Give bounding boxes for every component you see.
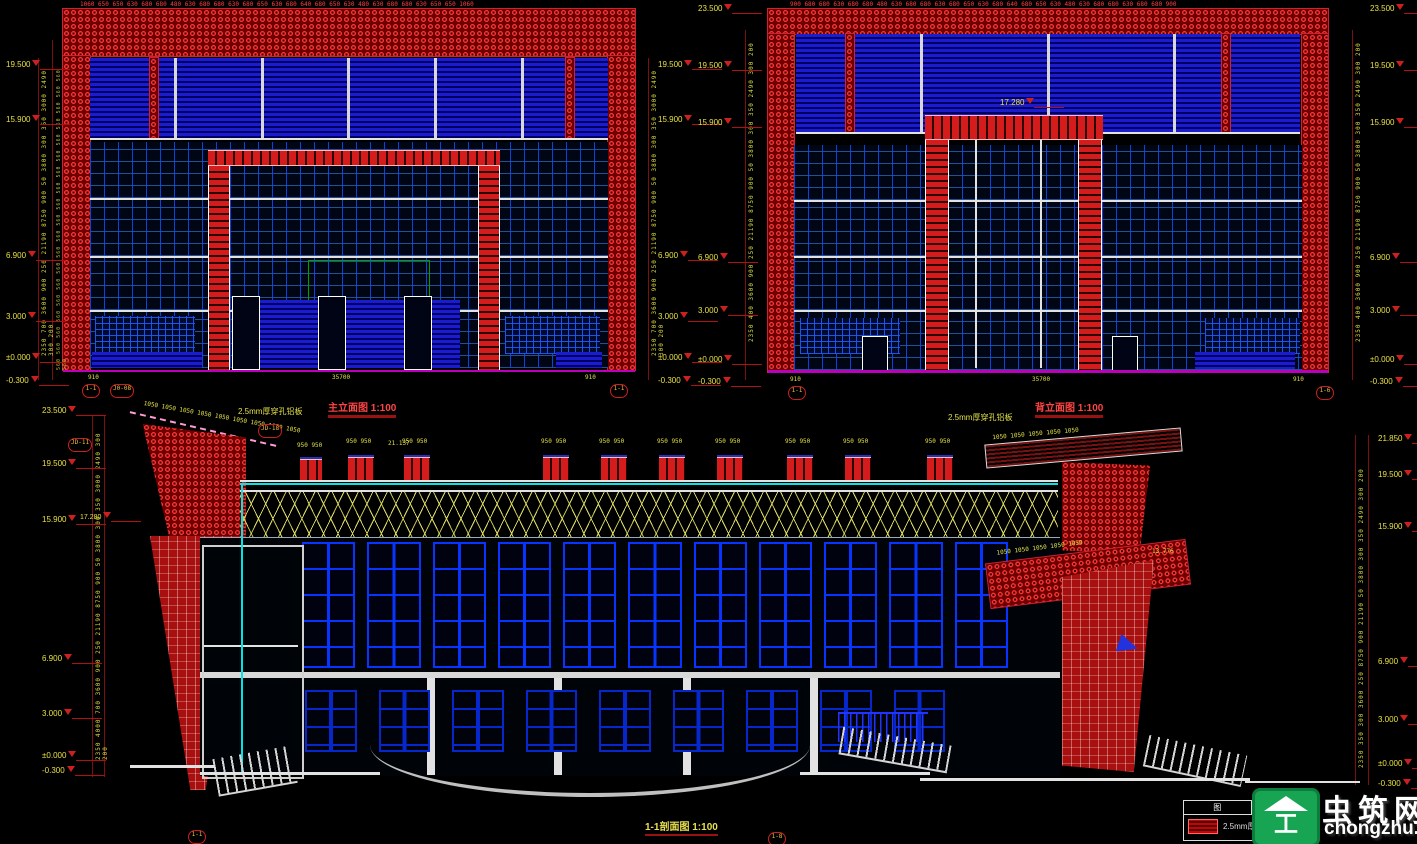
ground-line: [800, 772, 930, 775]
level-marker: 15.900: [6, 115, 40, 125]
red-brick-pier: [1078, 140, 1102, 370]
perforated-panel-band-top: [63, 9, 635, 56]
roof-monitor: 950 950: [300, 451, 322, 481]
title-scale: 1:100: [371, 403, 397, 414]
side-dimension-chain: 2350 400 3600 900 250 21190 8750 900 50 …: [748, 42, 755, 342]
section-window: [746, 690, 798, 752]
level-triangle-icon: [32, 353, 40, 363]
axis-bubble: 1-1: [82, 384, 100, 398]
watermark-logo: 工: [1252, 788, 1320, 844]
level-triangle-icon: [68, 406, 76, 416]
level-marker: 19.500: [1378, 470, 1412, 480]
level-marker: ±0.000: [698, 355, 732, 365]
perforated-strip: [1222, 34, 1230, 132]
perforated-wedge-upper: [136, 424, 246, 536]
section-window: [367, 542, 420, 668]
level-triangle-icon: [32, 60, 40, 70]
louver-panel: [95, 316, 195, 354]
level-marker: -0.300: [6, 376, 39, 386]
level-triangle-icon: [723, 377, 731, 387]
level-marker: 6.900: [6, 251, 36, 261]
level-marker: 17.280: [80, 512, 111, 522]
slope-elevation-mark: 13.776: [1152, 548, 1174, 555]
section-window: [305, 690, 357, 752]
level-triangle-icon: [720, 253, 728, 263]
section-window: [563, 542, 616, 668]
level-marker: 19.500: [6, 60, 40, 70]
level-marker: 15.900: [698, 118, 732, 128]
level-triangle-icon: [680, 251, 688, 261]
level-triangle-icon: [68, 515, 76, 525]
level-triangle-icon: [67, 766, 75, 776]
roller-shutter-panel: [437, 58, 521, 138]
level-triangle-icon: [1395, 377, 1403, 387]
red-brick-pier: [925, 140, 949, 370]
level-triangle-icon: [1392, 306, 1400, 316]
door-frame: [1112, 336, 1138, 372]
section-window: [673, 690, 725, 752]
ground-base-line: [768, 370, 1328, 373]
level-marker: 6.900: [1370, 253, 1400, 263]
level-triangle-icon: [684, 115, 692, 125]
level-triangle-icon: [1396, 118, 1404, 128]
dimension-line: [1355, 435, 1356, 785]
bottom-dimension: 35700: [1032, 376, 1050, 383]
glazing-band: [556, 352, 602, 368]
level-marker: 3.000: [698, 306, 728, 316]
bottom-dimension: 910: [790, 376, 801, 383]
perforated-panel-note: 2.5mm厚穿孔铝板: [948, 412, 1012, 423]
front-elevation-title: 主立面图 1:100: [328, 399, 396, 418]
roller-shutter-panel: [796, 34, 920, 132]
louver-panel: [505, 316, 600, 354]
glazing-band: [92, 352, 202, 368]
level-triangle-icon: [1396, 355, 1404, 365]
level-marker: 6.900: [1378, 657, 1408, 667]
level-marker: 19.500: [698, 61, 732, 71]
axis-bubble: 1-1: [188, 830, 206, 844]
level-triangle-icon: [684, 353, 692, 363]
section-window: [694, 542, 747, 668]
level-triangle-icon: [1404, 522, 1412, 532]
level-triangle-icon: [64, 654, 72, 664]
dimension-line: [648, 58, 649, 380]
level-marker: 23.500: [42, 406, 76, 416]
upper-window-row: [302, 542, 1008, 668]
title-scale: 1:100: [1078, 403, 1104, 414]
level-marker: 23.500: [1370, 4, 1404, 14]
door-frame: [862, 336, 888, 372]
foundation-curve: [370, 745, 810, 797]
dimension-line: [1368, 435, 1369, 785]
level-triangle-icon: [1404, 759, 1412, 769]
window-grid-floor: [794, 202, 1302, 256]
level-triangle-icon: [31, 376, 39, 386]
level-marker: -0.300: [1370, 377, 1403, 387]
axis-bubble: 1-6: [1316, 386, 1334, 400]
level-marker: 3.000: [1378, 715, 1408, 725]
legend-header-cell: 图: [1184, 801, 1252, 814]
window-grid-floor: [794, 145, 1302, 200]
level-marker: 15.900: [1378, 522, 1412, 532]
level-marker: 6.900: [658, 251, 688, 261]
dimension-line: [38, 58, 39, 380]
door-frame: [404, 296, 432, 370]
cad-canvas: 1060 650 650 630 680 680 480 630 680 680…: [0, 0, 1417, 844]
axis-bubble: 1-1: [610, 384, 628, 398]
ground-line: [200, 772, 380, 775]
detail-bubble: JD-18: [258, 424, 282, 438]
level-triangle-icon: [64, 709, 72, 719]
level-marker: 15.900: [1370, 118, 1404, 128]
roof-monitor: 950 950: [787, 447, 813, 481]
perforated-panel-column-right: [1302, 34, 1328, 372]
level-triangle-icon: [1400, 715, 1408, 725]
bottom-dimension: 35700: [332, 374, 350, 381]
section-window: [824, 542, 877, 668]
level-triangle-icon: [103, 512, 111, 522]
roller-shutter-panel: [90, 58, 174, 138]
roof-monitor: 950 950: [601, 447, 627, 481]
level-marker: 3.000: [1370, 306, 1400, 316]
level-triangle-icon: [1396, 61, 1404, 71]
level-marker: -0.300: [698, 377, 731, 387]
level-triangle-icon: [680, 312, 688, 322]
title-text: 主立面图: [328, 403, 368, 414]
section-window: [433, 542, 486, 668]
section-window: [379, 690, 431, 752]
section-window: [452, 690, 504, 752]
dimension-line: [745, 30, 746, 380]
level-marker: 19.500: [1370, 61, 1404, 71]
level-triangle-icon: [724, 355, 732, 365]
right-perforated-wall: [1062, 560, 1154, 772]
level-marker: ±0.000: [658, 353, 692, 363]
mullion-line: [975, 140, 977, 368]
glazing-band: [1195, 352, 1295, 369]
level-triangle-icon: [28, 251, 36, 261]
title-scale: 1:100: [692, 822, 718, 833]
side-dimension-chain: 2350 4000 700 3600 900 250 21190 8750 90…: [95, 430, 109, 760]
red-brick-pier: [208, 166, 230, 370]
roof-monitor: 950 950: [659, 447, 685, 481]
window-grid-floor: [794, 258, 1302, 310]
section-window: [526, 690, 578, 752]
level-triangle-icon: [724, 4, 732, 14]
ground-base-line: [63, 370, 635, 372]
title-text: 背立面图: [1035, 403, 1075, 414]
roof-line: [240, 480, 1058, 482]
roller-shutter-panel: [1176, 34, 1300, 132]
title-text: 1-1剖面图: [645, 822, 689, 833]
detail-bubble: J0-08: [110, 384, 134, 398]
level-marker: 19.500: [658, 60, 692, 70]
level-triangle-icon: [724, 61, 732, 71]
bottom-dimension: 910: [88, 374, 99, 381]
house-body-icon: 工: [1255, 811, 1317, 837]
section-window: [599, 690, 651, 752]
perforated-strip: [846, 34, 854, 132]
ground-line: [1245, 781, 1360, 783]
watermark-site-url: chongzhu.cn: [1324, 818, 1417, 840]
ground-line: [130, 765, 215, 768]
level-triangle-icon: [1392, 253, 1400, 263]
level-marker: 17.280: [1000, 98, 1034, 108]
level-marker: 6.900: [698, 253, 728, 263]
level-marker: -0.300: [658, 376, 691, 386]
level-marker: 3.000: [658, 312, 688, 322]
level-triangle-icon: [1404, 470, 1412, 480]
interior-room-outline: [202, 545, 304, 779]
dimension-line: [92, 415, 93, 777]
perforated-panel-hatch-swatch: [1188, 819, 1218, 834]
side-small-dimension-chain: 560 560 560 560 560 560 560 560 560 560 …: [56, 60, 68, 370]
interior-floor-line: [204, 645, 298, 647]
section-window: [889, 542, 942, 668]
level-marker: 15.900: [42, 515, 76, 525]
level-triangle-icon: [724, 118, 732, 128]
section-window: [628, 542, 681, 668]
perforated-panel-column-left: [768, 34, 794, 372]
dimension-line: [1352, 30, 1353, 380]
floor-line: [90, 138, 608, 140]
axis-bubble: 1-8: [768, 832, 786, 844]
level-marker: ±0.000: [1378, 759, 1412, 769]
louver-panel: [1205, 318, 1300, 354]
section-title: 1-1剖面图 1:100: [645, 818, 718, 836]
level-marker: -0.300: [42, 766, 75, 776]
floor-slab: [200, 672, 1060, 678]
perforated-strip: [150, 58, 158, 138]
side-dimension-chain: 2350 400 3600 900 250 21190 8750 900 50 …: [1355, 42, 1362, 342]
mullion-line: [1040, 140, 1042, 368]
level-marker: 23.500: [698, 4, 732, 14]
rear-elevation-title: 背立面图 1:100: [1035, 399, 1103, 418]
level-triangle-icon: [1396, 4, 1404, 14]
level-marker: 3.000: [6, 312, 36, 322]
cyan-wall-line: [241, 483, 243, 775]
front-top-dimension-chain: 1060 650 650 630 680 680 480 630 680 680…: [80, 1, 625, 8]
level-marker: 6.900: [42, 654, 72, 664]
perforated-panel-note: 2.5mm厚穿孔铝板: [238, 406, 302, 417]
roller-shutter-panel: [350, 58, 434, 138]
section-window: [302, 542, 355, 668]
side-dimension-chain: 2350 700 3600 900 250 21190 8750 900 50 …: [41, 66, 55, 356]
perforated-strip: [566, 58, 574, 138]
door-frame: [318, 296, 346, 370]
level-triangle-icon: [28, 312, 36, 322]
level-marker: 19.500: [42, 459, 76, 469]
level-marker: 15.900: [658, 115, 692, 125]
roller-shutter-panel: [177, 58, 261, 138]
level-triangle-icon: [1400, 657, 1408, 667]
level-triangle-icon: [68, 751, 76, 761]
level-marker: 3.000: [42, 709, 72, 719]
roof-monitor: 950 950: [348, 447, 374, 481]
level-marker: ±0.000: [42, 751, 76, 761]
perforated-panel-column-right: [608, 56, 635, 370]
bottom-dimension: 910: [585, 374, 596, 381]
level-triangle-icon: [68, 459, 76, 469]
side-dimension-chain: 2350 350 300 3600 250 8750 900 21190 50 …: [1358, 448, 1365, 768]
section-window: [759, 542, 812, 668]
bottom-dimension: 910: [1293, 376, 1304, 383]
perforated-panel-band-top: [768, 9, 1328, 34]
level-triangle-icon: [683, 376, 691, 386]
level-triangle-icon: [32, 115, 40, 125]
level-marker: ±0.000: [6, 353, 40, 363]
roof-monitor: 950 950: [404, 447, 430, 481]
level-marker: ±0.000: [1370, 355, 1404, 365]
level-triangle-icon: [1404, 434, 1412, 444]
door-frame: [232, 296, 260, 370]
red-portal-header: [208, 150, 500, 166]
rear-top-dimension-chain: 900 680 680 630 680 680 480 630 680 680 …: [790, 1, 1310, 8]
roof-monitor: 950 950: [543, 447, 569, 481]
window-grid-floor: [90, 200, 608, 256]
level-triangle-icon: [1026, 98, 1034, 108]
ground-line: [920, 778, 1250, 781]
roof-truss: [240, 490, 1058, 540]
roof-monitor: 950 950: [717, 447, 743, 481]
axis-bubble: 1-1: [788, 386, 806, 400]
red-brick-pier: [478, 166, 500, 370]
roller-shutter-row: [90, 58, 608, 138]
section-window: [498, 542, 551, 668]
red-portal-header: [925, 115, 1103, 140]
roof-monitor: 950 950: [927, 447, 953, 481]
level-marker: 21.850: [1378, 434, 1412, 444]
roof-monitor: 950 950: [845, 447, 871, 481]
roller-shutter-panel: [264, 58, 348, 138]
level-triangle-icon: [720, 306, 728, 316]
level-triangle-icon: [684, 60, 692, 70]
detail-bubble: JD-11: [68, 438, 92, 452]
